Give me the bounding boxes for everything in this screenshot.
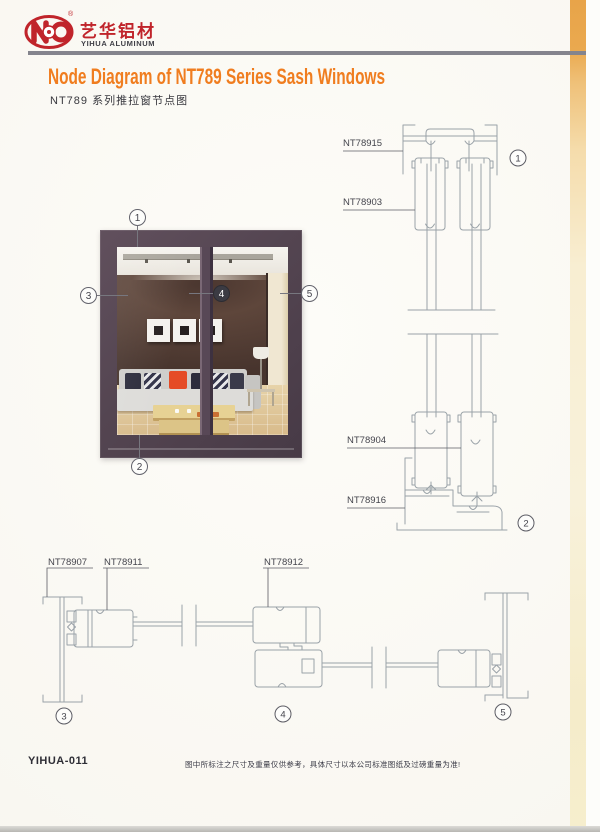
callout-3: 3 bbox=[80, 287, 97, 304]
hsec-callout-5: 5 bbox=[495, 704, 511, 720]
label-nt78911: NT78911 bbox=[104, 557, 142, 568]
callout-5: 5 bbox=[301, 285, 318, 302]
page-subtitle: NT789 系列推拉窗节点图 bbox=[50, 92, 188, 108]
window-photo bbox=[100, 230, 302, 458]
footer-disclaimer: 图中所标注之尺寸及重量仅供参考，具体尺寸以本公司标准图纸及过磅重量为准! bbox=[185, 759, 460, 770]
horizontal-section-drawing: NT78907 NT78911 NT78912 3 4 5 bbox=[30, 555, 540, 730]
label-nt78912: NT78912 bbox=[264, 557, 303, 568]
glass-panes bbox=[427, 164, 481, 417]
scan-edge-strip bbox=[570, 0, 586, 832]
interlock-profile bbox=[253, 607, 322, 687]
sash-box-left-profile bbox=[74, 610, 137, 647]
hsec-callout-3: 3 bbox=[56, 708, 72, 724]
svg-text:5: 5 bbox=[500, 708, 505, 719]
callout-4: 4 bbox=[213, 285, 230, 302]
svg-text:4: 4 bbox=[280, 710, 285, 721]
label-nt78907: NT78907 bbox=[48, 557, 87, 568]
svg-text:1: 1 bbox=[515, 154, 520, 165]
document-code: YIHUA-011 bbox=[28, 755, 88, 767]
callout-2: 2 bbox=[131, 458, 148, 475]
hsec-callout-4: 4 bbox=[275, 706, 291, 722]
callout-line-2 bbox=[139, 435, 140, 459]
page-title: Node Diagram of NT789 Series Sash Window… bbox=[48, 64, 385, 90]
glass-run-1 bbox=[133, 605, 253, 646]
top-frame-profile bbox=[403, 125, 497, 175]
vsec-callout-2: 2 bbox=[518, 515, 534, 531]
callout-line-5 bbox=[280, 293, 301, 294]
jamb-left-profile bbox=[43, 597, 82, 702]
callout-1: 1 bbox=[129, 209, 146, 226]
callout-line-1 bbox=[137, 226, 138, 247]
scan-bottom-edge bbox=[0, 826, 600, 832]
brand-name-en: YIHUA ALUMINUM bbox=[81, 39, 155, 48]
header-rule bbox=[28, 51, 586, 55]
jamb-right-profile bbox=[485, 593, 528, 701]
label-nt78916: NT78916 bbox=[347, 495, 386, 506]
svg-text:2: 2 bbox=[523, 519, 528, 530]
label-nt78903: NT78903 bbox=[343, 197, 382, 208]
scan-edge-white bbox=[586, 0, 600, 832]
photo-bottom-track bbox=[108, 448, 294, 450]
vsec-labels: NT78915 NT78903 NT78904 NT78916 bbox=[343, 138, 461, 508]
catalog-page: ® 艺华铝材 YIHUA ALUMINUM Node Diagram of NT… bbox=[0, 0, 600, 832]
label-nt78915: NT78915 bbox=[343, 138, 382, 149]
callout-line-3 bbox=[97, 295, 128, 296]
svg-text:3: 3 bbox=[61, 712, 66, 723]
sill-profile bbox=[397, 458, 507, 530]
hsec-labels: NT78907 NT78911 NT78912 bbox=[47, 557, 309, 610]
photo-meeting-stile bbox=[200, 247, 213, 435]
glass-run-2 bbox=[322, 647, 438, 688]
registered-mark: ® bbox=[68, 11, 73, 18]
vertical-section-drawing: NT78915 NT78903 NT78904 NT78916 1 2 bbox=[335, 112, 545, 537]
vsec-callout-1: 1 bbox=[510, 150, 526, 166]
callout-line-4 bbox=[189, 293, 213, 294]
sash-box-right-profile bbox=[438, 650, 501, 687]
label-nt78904: NT78904 bbox=[347, 435, 386, 446]
brand-logo-icon bbox=[24, 13, 76, 51]
section-break-lines bbox=[408, 310, 498, 334]
